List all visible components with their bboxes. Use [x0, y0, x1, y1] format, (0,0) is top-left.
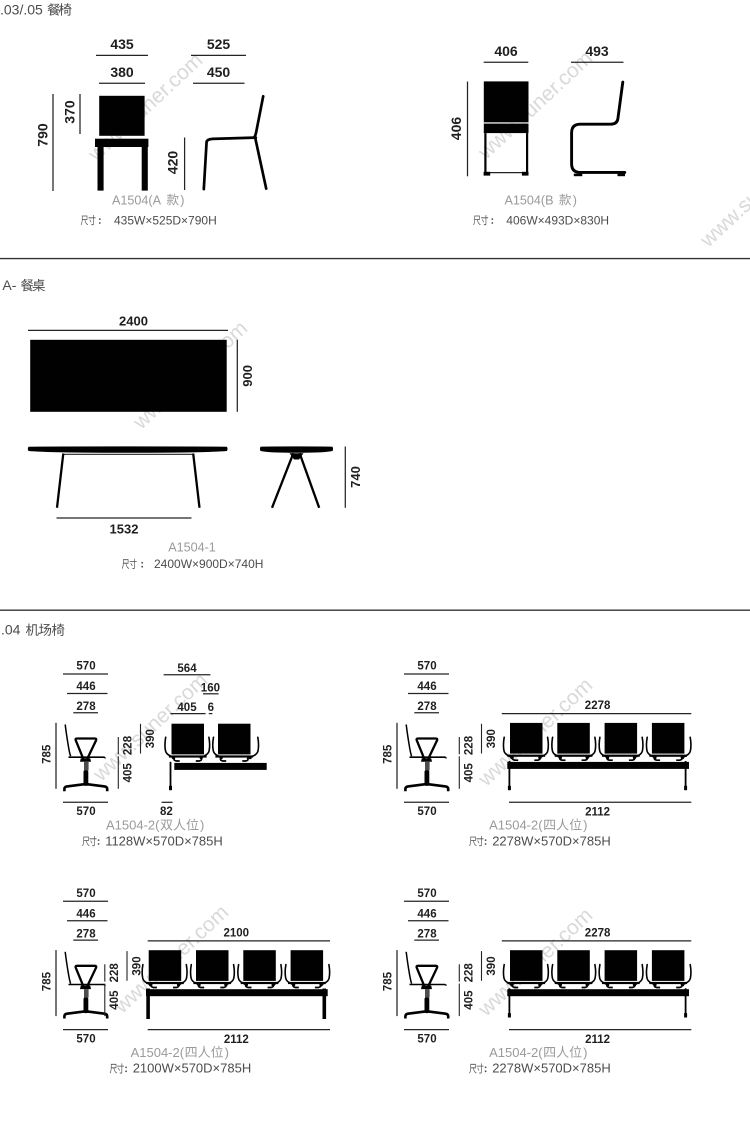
svg-text:6: 6 — [208, 702, 214, 714]
svg-text:A1504-2(: A1504-2( — [131, 1045, 185, 1060]
svg-text:A-: A- — [2, 277, 16, 293]
svg-text:www.suner.com: www.suner.com — [695, 135, 750, 253]
svg-text:390: 390 — [486, 729, 498, 748]
svg-text:790: 790 — [35, 123, 51, 147]
svg-text:): ) — [225, 1045, 229, 1060]
svg-text:435W×525D×790H: 435W×525D×790H — [114, 213, 217, 227]
svg-text:82: 82 — [160, 806, 173, 818]
svg-text:A1504-2(: A1504-2( — [489, 818, 543, 833]
svg-text:228: 228 — [122, 735, 134, 755]
svg-text:): ) — [583, 818, 587, 833]
svg-text:): ) — [573, 193, 577, 207]
svg-text:435: 435 — [110, 36, 134, 52]
svg-text:405: 405 — [109, 990, 121, 1010]
svg-text:A1504-2(: A1504-2( — [489, 1045, 543, 1060]
svg-text:160: 160 — [201, 683, 220, 695]
svg-text:2100: 2100 — [224, 927, 250, 939]
svg-text:564: 564 — [177, 663, 197, 675]
svg-text:406: 406 — [448, 117, 464, 141]
svg-text:A1504-1: A1504-1 — [168, 541, 216, 555]
svg-text:405: 405 — [463, 763, 475, 783]
svg-text:2400W×900D×740H: 2400W×900D×740H — [154, 557, 263, 571]
svg-text:2278: 2278 — [585, 927, 611, 939]
svg-text:405: 405 — [177, 702, 197, 714]
svg-text:A1504(A: A1504(A — [112, 193, 162, 207]
svg-text:): ) — [200, 818, 204, 833]
svg-text:380: 380 — [110, 64, 134, 80]
svg-text:420: 420 — [165, 151, 181, 175]
svg-text:406W×493D×830H: 406W×493D×830H — [506, 213, 609, 227]
svg-text:450: 450 — [207, 64, 231, 80]
svg-text:2100W×570D×785H: 2100W×570D×785H — [133, 1061, 252, 1076]
svg-text:405: 405 — [122, 763, 134, 783]
svg-text:2400: 2400 — [119, 314, 148, 329]
svg-text:525: 525 — [207, 36, 231, 52]
svg-text:2112: 2112 — [585, 807, 610, 819]
svg-text:2278W×570D×785H: 2278W×570D×785H — [492, 1061, 611, 1076]
svg-text:.03/.05: .03/.05 — [0, 1, 43, 17]
svg-text:390: 390 — [145, 729, 157, 748]
svg-text:2278: 2278 — [585, 700, 611, 712]
svg-text:): ) — [583, 1045, 587, 1060]
svg-text:2112: 2112 — [585, 1034, 610, 1046]
svg-text:A1504(B: A1504(B — [505, 193, 554, 207]
svg-text:370: 370 — [62, 100, 78, 124]
svg-text:228: 228 — [463, 735, 475, 755]
svg-text:228: 228 — [463, 963, 475, 983]
svg-text:): ) — [180, 193, 184, 207]
svg-text:390: 390 — [486, 956, 498, 975]
svg-text:228: 228 — [109, 963, 121, 983]
svg-text:1128W×570D×785H: 1128W×570D×785H — [105, 833, 223, 848]
svg-text:405: 405 — [463, 990, 475, 1010]
svg-text:.04: .04 — [1, 622, 21, 638]
svg-text:A1504-2(: A1504-2( — [106, 818, 160, 833]
svg-text:1532: 1532 — [110, 522, 139, 537]
svg-text:900: 900 — [240, 365, 255, 387]
svg-text:493: 493 — [585, 43, 609, 59]
svg-text:406: 406 — [494, 43, 518, 59]
svg-text:740: 740 — [348, 466, 363, 488]
svg-text:2278W×570D×785H: 2278W×570D×785H — [492, 833, 611, 848]
